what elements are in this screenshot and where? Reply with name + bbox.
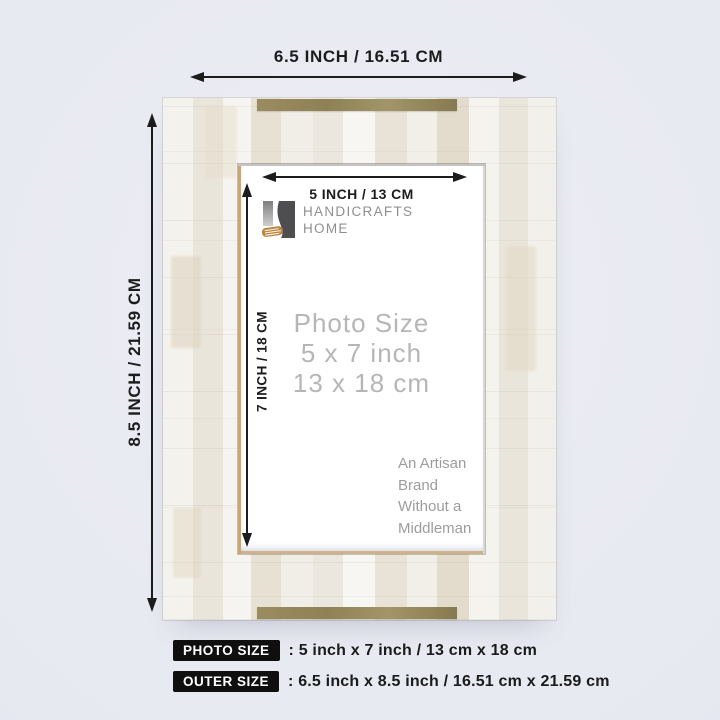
photo-opening: 5 INCH / 13 CM 7 INCH / 18 CM [238, 164, 485, 554]
brand-logo: HANDICRAFTS HOME [262, 200, 413, 240]
outer-height-dimension-arrow [147, 113, 157, 612]
photo-size-row: PHOTO SIZE : 5 inch x 7 inch / 13 cm x 1… [173, 640, 610, 661]
brand-tagline: An Artisan Brand Without a Middleman [398, 453, 471, 539]
brand-name: HANDICRAFTS HOME [303, 203, 413, 237]
photo-frame-image: 5 INCH / 13 CM 7 INCH / 18 CM [163, 98, 556, 620]
outer-width-dimension-label: 6.5 INCH / 16.51 CM [190, 47, 527, 67]
arrow-line [271, 176, 458, 178]
brand-tagline-line1: An Artisan [398, 453, 471, 475]
frame-texture-patch [506, 246, 536, 371]
outer-size-value: : 6.5 inch x 8.5 inch / 16.51 cm x 21.59… [288, 673, 610, 691]
photo-size-caption-line3: 13 x 18 cm [238, 368, 485, 398]
arrow-line [199, 76, 518, 78]
outer-height-dimension-label: 8.5 INCH / 21.59 CM [125, 252, 145, 472]
arrow-right-icon [513, 72, 527, 82]
photo-size-value: : 5 inch x 7 inch / 13 cm x 18 cm [289, 642, 538, 660]
arrow-line [151, 122, 153, 603]
arrow-down-icon [147, 598, 157, 612]
outer-size-badge: OUTER SIZE [173, 671, 279, 692]
brand-name-line2: HOME [303, 220, 413, 237]
brand-tagline-line4: Middleman [398, 518, 471, 540]
arrow-right-icon [453, 172, 467, 182]
outer-width-dimension-arrow [190, 72, 527, 82]
brass-accent-strip-bottom [257, 607, 457, 619]
frame-texture-patch [171, 256, 201, 348]
size-summary: PHOTO SIZE : 5 inch x 7 inch / 13 cm x 1… [173, 640, 610, 692]
outer-size-row: OUTER SIZE : 6.5 inch x 8.5 inch / 16.51… [173, 671, 610, 692]
brass-accent-strip-top [257, 99, 457, 111]
brand-tagline-line2: Brand [398, 475, 471, 497]
photo-size-caption: Photo Size 5 x 7 inch 13 x 18 cm [238, 308, 485, 398]
photo-size-badge: PHOTO SIZE [173, 640, 280, 661]
arrow-down-icon [242, 533, 252, 547]
frame-texture-patch [205, 106, 237, 178]
photo-size-caption-line2: 5 x 7 inch [238, 338, 485, 368]
brand-name-line1: HANDICRAFTS [303, 203, 413, 220]
frame-texture-patch [173, 508, 201, 578]
brand-tagline-line3: Without a [398, 496, 471, 518]
product-dimension-diagram: 6.5 INCH / 16.51 CM 8.5 INCH / 21.59 CM … [0, 0, 720, 720]
photo-size-caption-line1: Photo Size [238, 308, 485, 338]
photo-width-dimension-arrow [262, 172, 467, 182]
handicrafts-home-logo-icon [262, 200, 296, 240]
